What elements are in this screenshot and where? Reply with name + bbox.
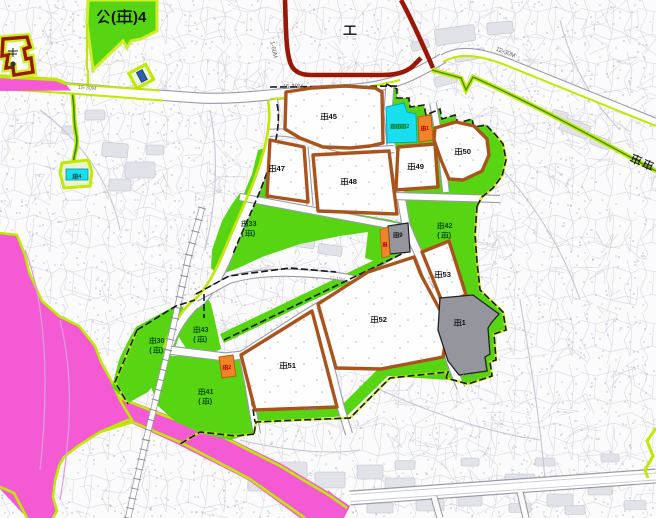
- svg-text:43: 43: [201, 325, 209, 334]
- svg-text:)4: )4: [133, 9, 147, 26]
- svg-text:53: 53: [443, 270, 451, 279]
- svg-text:1: 1: [462, 318, 466, 327]
- svg-text:49: 49: [416, 162, 424, 171]
- svg-text:6-10M: 6-10M: [303, 407, 316, 412]
- svg-text:51: 51: [288, 361, 297, 370]
- svg-text:47: 47: [277, 164, 285, 173]
- svg-text:2: 2: [228, 365, 231, 371]
- svg-text:4-10M: 4-10M: [462, 373, 475, 378]
- svg-text:50: 50: [463, 147, 471, 156]
- svg-text:48: 48: [349, 177, 357, 186]
- svg-text:1: 1: [426, 126, 429, 132]
- svg-text:30: 30: [157, 336, 165, 345]
- svg-text:45: 45: [329, 112, 338, 121]
- svg-text:2: 2: [406, 124, 409, 130]
- svg-text:52: 52: [379, 315, 387, 324]
- svg-text:33: 33: [249, 219, 257, 228]
- svg-text:41: 41: [206, 387, 214, 396]
- svg-text:(: (: [111, 9, 116, 26]
- svg-text:42: 42: [445, 221, 453, 230]
- svg-text:15-30M: 15-30M: [283, 84, 304, 91]
